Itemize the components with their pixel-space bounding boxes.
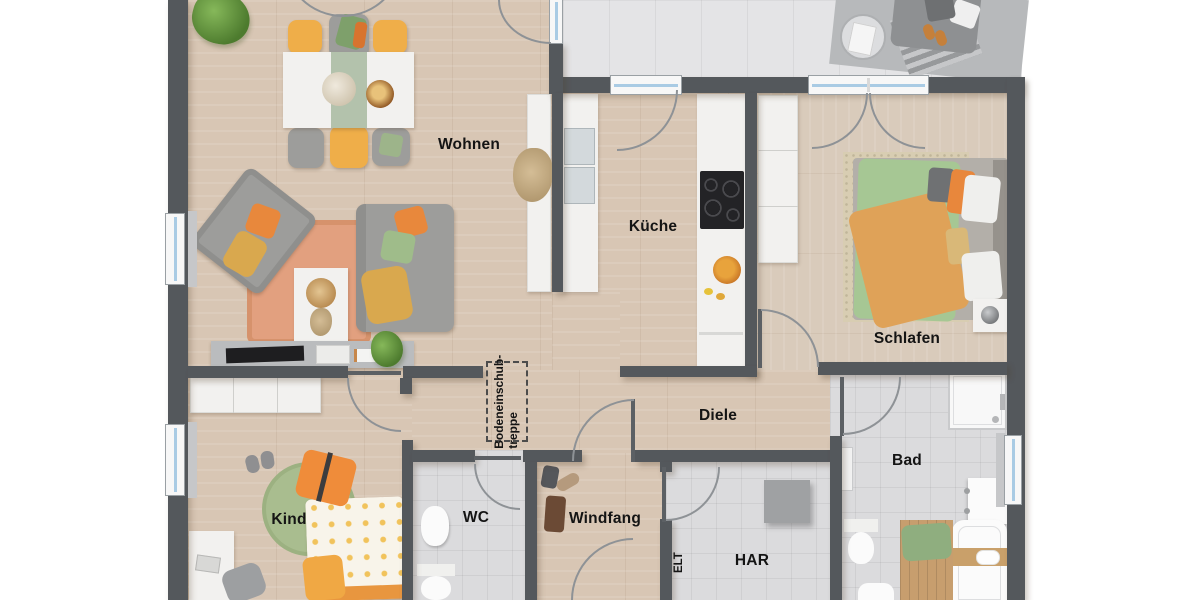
kids-wardrobe-seam <box>233 376 234 413</box>
room-label-schlafen: Schlafen <box>874 330 940 348</box>
bedroom-terrace-door <box>808 75 929 95</box>
window-sill <box>188 211 197 287</box>
window-glass <box>614 84 678 87</box>
room-label-kueche: Küche <box>629 218 677 236</box>
room-label-elt: ELT <box>662 542 696 584</box>
kids-blanket-orange <box>302 554 346 600</box>
attic-stairs-line2: treppe <box>506 412 520 449</box>
window-glass <box>1012 439 1015 501</box>
bed-pillow-white <box>961 250 1003 301</box>
lemon <box>716 293 725 300</box>
bag <box>544 495 566 532</box>
floor-plan: Bodeneinschub- treppe ELT Wohnen Küche S… <box>0 0 1200 600</box>
chair-cushion-green <box>378 132 403 157</box>
room-label-kind: Kind <box>271 511 306 529</box>
sideboard-deco <box>316 345 350 364</box>
coffee-table-tray <box>306 278 336 308</box>
kitchen-passage-floor <box>552 292 620 378</box>
sideboard-plant <box>371 331 403 367</box>
exterior-wall-right <box>1007 77 1025 600</box>
living-room-window <box>165 213 185 285</box>
wall-utility-top <box>635 450 830 462</box>
glass-cabinet-door <box>564 128 595 165</box>
wall-kitchen-bottom <box>620 366 757 377</box>
window-glass <box>174 217 177 281</box>
bidet <box>858 583 894 600</box>
window-glass <box>174 428 177 492</box>
wall-living-kids-b <box>403 366 483 378</box>
wall-living-terrace-corner <box>549 42 563 94</box>
towel-green <box>901 522 952 561</box>
kids-wardrobe-seam <box>277 376 278 413</box>
wardrobe-seam <box>758 206 798 207</box>
vanity-faucet <box>964 488 970 494</box>
slipper <box>260 450 275 470</box>
wall-living-kids-a <box>188 366 348 378</box>
room-label-wc: WC <box>463 509 489 527</box>
shower-drain <box>992 416 999 423</box>
bed-pillow-white <box>961 174 1002 224</box>
dining-chair <box>330 126 368 168</box>
decorative-bowl <box>366 80 394 108</box>
wall-kitchen-left <box>552 93 563 292</box>
room-label-bad: Bad <box>892 452 922 470</box>
wc-toilet-tank <box>417 564 455 576</box>
lemon <box>704 288 713 295</box>
rolled-towel <box>976 550 1000 565</box>
fridge-handle <box>699 332 743 335</box>
flower-bouquet <box>322 72 356 106</box>
room-label-wohnen: Wohnen <box>438 136 500 154</box>
attic-stairs-line1: Bodeneinschub- <box>492 354 506 448</box>
attic-stairs-label: Bodeneinschub- treppe <box>486 361 528 442</box>
dining-chair <box>373 20 407 54</box>
sofa-pillow-green <box>380 229 417 264</box>
kids-door-leaf <box>348 371 401 375</box>
window-sill <box>188 422 197 498</box>
utility-appliance <box>764 480 810 523</box>
table-lamp <box>981 306 999 324</box>
living-terrace-door <box>549 0 563 44</box>
cooktop <box>700 171 744 229</box>
tv <box>226 346 304 364</box>
bathroom-toilet-bowl <box>848 532 874 564</box>
wall-wc-right <box>525 462 537 600</box>
wc-sink <box>421 506 449 546</box>
wc-toilet-bowl <box>421 576 451 600</box>
window-divider <box>867 78 870 92</box>
glass-cabinet-door <box>564 167 595 204</box>
wall-bathroom-left <box>830 436 842 600</box>
wardrobe-seam <box>758 150 798 151</box>
wall-kitchen-right <box>745 93 757 374</box>
exterior-wall-left <box>168 0 188 600</box>
wall-bedroom-bottom <box>818 362 1007 375</box>
room-label-diele: Diele <box>699 407 737 425</box>
bathroom-toilet-tank <box>844 519 878 532</box>
wall-wc-left <box>402 440 413 600</box>
wall-kids-door-stub <box>400 378 412 394</box>
fruit-bowl <box>713 256 741 284</box>
window-glass <box>555 2 558 40</box>
dining-chair <box>288 20 322 54</box>
kids-room-window <box>165 424 185 496</box>
radiator <box>841 447 853 491</box>
vanity-faucet <box>964 508 970 514</box>
bedroom-wardrobe <box>758 95 798 263</box>
bathroom-window <box>1004 435 1022 505</box>
kitchen-island <box>697 94 746 366</box>
kids-wardrobe <box>190 376 321 413</box>
wc-door-leaf <box>474 456 521 460</box>
elt-text: ELT <box>672 553 685 574</box>
wall-wc-top <box>412 450 475 462</box>
sofa-blanket-yellow <box>360 264 415 325</box>
shower-faucet <box>1000 394 1005 410</box>
dining-chair <box>288 128 324 168</box>
kids-laptop <box>195 554 221 573</box>
room-label-har: HAR <box>735 552 769 570</box>
room-label-windfang: Windfang <box>569 510 641 528</box>
